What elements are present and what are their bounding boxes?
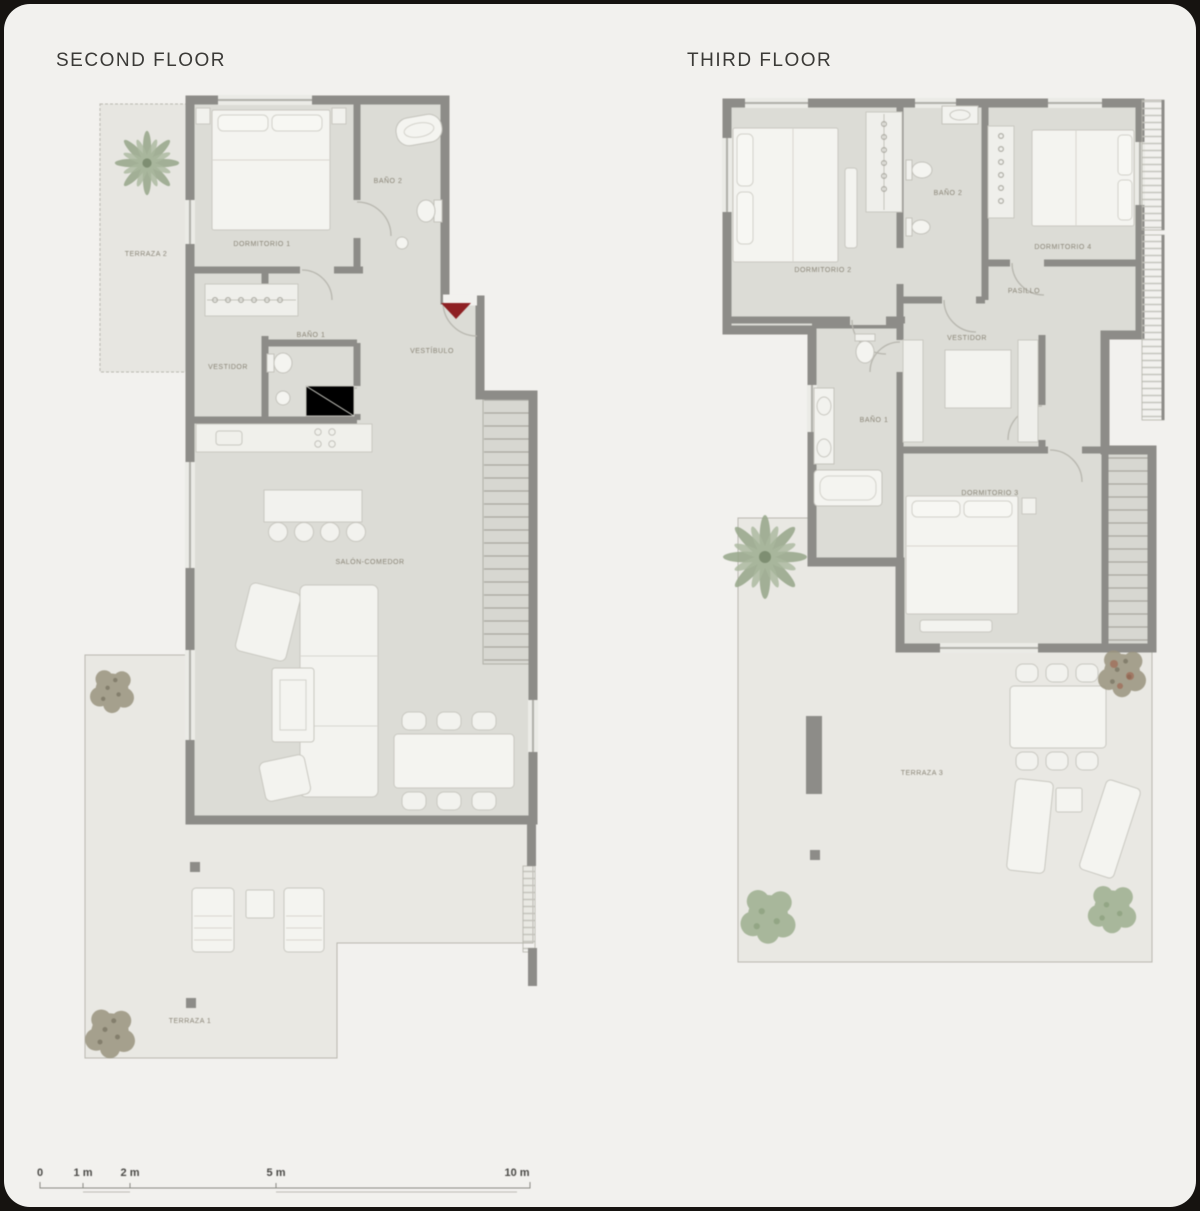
vanity-sink-icon [942, 106, 978, 124]
room-label-pasillo: PASILLO [1008, 288, 1040, 295]
bidet-icon [906, 218, 912, 236]
scale-label-2m: 2 m [121, 1167, 140, 1179]
coffee-table [272, 668, 314, 742]
side-balcony [1142, 100, 1164, 420]
side-table [1056, 788, 1082, 812]
room-label-dormitorio-3: DORMITORIO 3 [961, 490, 1018, 497]
room-label-dormitorio-4: DORMITORIO 4 [1034, 244, 1091, 251]
room-label-bano-2: BAÑO 2 [934, 188, 963, 197]
room-label-bano-1: BAÑO 1 [297, 330, 326, 339]
third-floor-plan: DORMITORIO 2 BAÑO 2 DORMITORIO 4 PASILLO… [723, 100, 1164, 962]
vanity-sink-icon [814, 388, 834, 464]
bathtub-icon [814, 470, 882, 506]
staircase [483, 396, 530, 664]
room-label-terraza-1: TERRAZA 1 [169, 1018, 212, 1025]
room-label-terraza-2: TERRAZA 2 [125, 251, 168, 258]
outdoor-dining-table [1010, 686, 1106, 748]
toilet-icon [267, 354, 274, 372]
kitchen-island [264, 490, 362, 522]
staircase [1107, 452, 1150, 646]
bed-dormitorio-3 [906, 496, 1036, 632]
wardrobe-closet [866, 112, 902, 212]
kitchen-counter [196, 424, 372, 452]
terrace-post [186, 998, 196, 1008]
palm-tree-icon [723, 515, 807, 599]
room-label-dormitorio-2: DORMITORIO 2 [794, 267, 851, 274]
room-label-terraza-3: TERRAZA 3 [901, 770, 944, 777]
scale-bar: 0 1 m 2 m 5 m 10 m [37, 1167, 530, 1192]
second-floor-plan: TERRAZA 2 DORMITORIO 1 BAÑO 2 VESTIDOR B… [85, 100, 537, 1058]
sink-icon [396, 237, 408, 249]
room-label-vestidor: VESTIDOR [947, 335, 987, 342]
scale-label-1m: 1 m [74, 1167, 93, 1179]
floorplan-drawing: TERRAZA 2 DORMITORIO 1 BAÑO 2 VESTIDOR B… [0, 0, 1200, 1211]
bedroom-bench [920, 620, 992, 632]
toilet-icon [855, 334, 875, 341]
side-table [246, 890, 274, 918]
scale-label-0: 0 [37, 1167, 43, 1179]
room-label-dormitorio-1: DORMITORIO 1 [233, 241, 290, 248]
wardrobe-closet [988, 126, 1014, 218]
room-label-vestidor: VESTIDOR [208, 364, 248, 371]
bedroom-bench [845, 168, 857, 248]
scale-bar-line [40, 1182, 530, 1188]
room-label-bano-2: BAÑO 2 [374, 176, 403, 185]
wardrobe-closet [205, 284, 298, 316]
scale-label-5m: 5 m [267, 1167, 286, 1179]
bed-dormitorio-2 [733, 128, 857, 262]
terrace-post [810, 850, 820, 860]
scale-label-10m: 10 m [504, 1167, 529, 1179]
toilet-icon [906, 160, 912, 180]
palm-tree-icon [115, 131, 179, 195]
bed-dormitorio-4 [1032, 130, 1134, 226]
sun-lounger [192, 888, 234, 952]
dining-table [394, 734, 514, 788]
room-label-vestibulo: VESTÍBULO [410, 346, 454, 355]
room-label-salon-comedor: SALÓN-COMEDOR [335, 557, 404, 566]
sun-lounger [284, 888, 324, 952]
terrace-bench [806, 716, 822, 794]
bed-dormitorio-1 [196, 108, 346, 230]
sink-icon [276, 391, 290, 405]
terrace-post [190, 862, 200, 872]
room-label-bano-1: BAÑO 1 [860, 415, 889, 424]
nightstand [1022, 498, 1036, 514]
